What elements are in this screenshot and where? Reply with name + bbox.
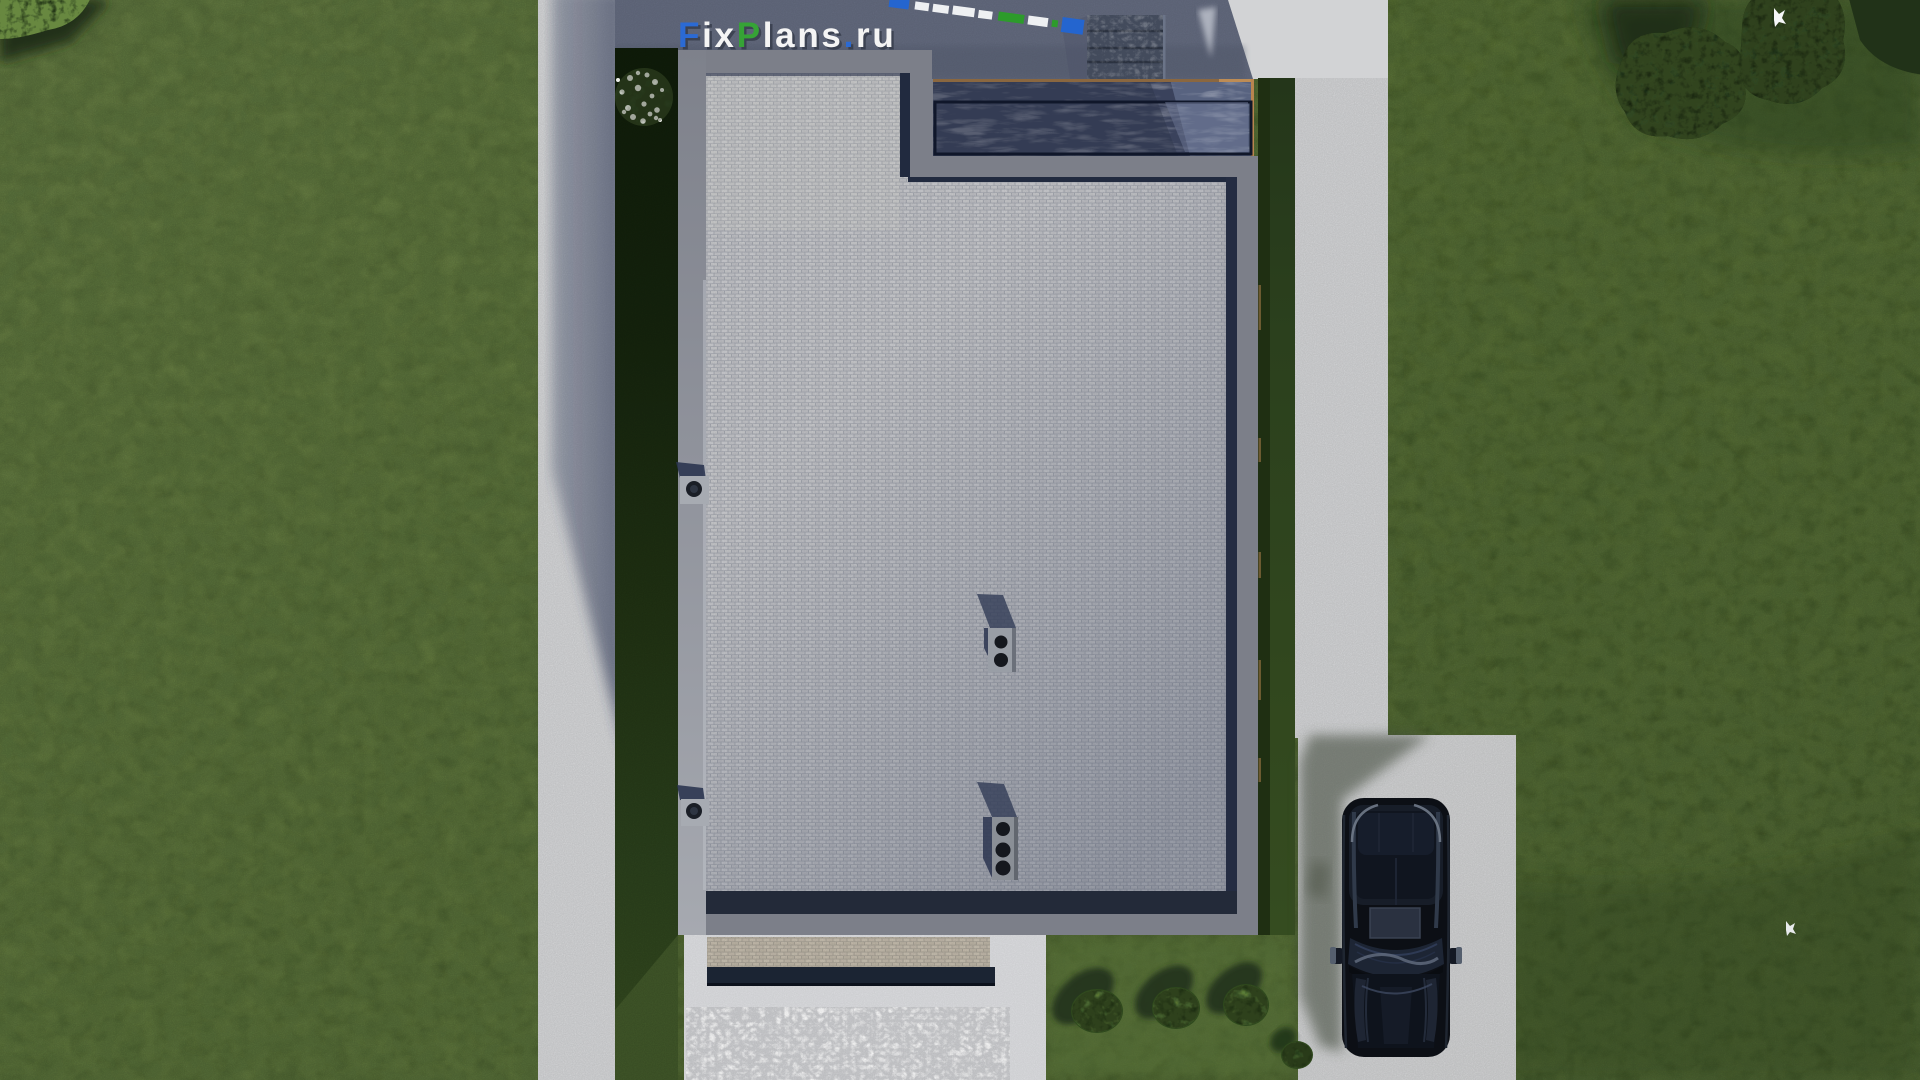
svg-text:FixPlans.ru: FixPlans.ru (678, 16, 896, 55)
